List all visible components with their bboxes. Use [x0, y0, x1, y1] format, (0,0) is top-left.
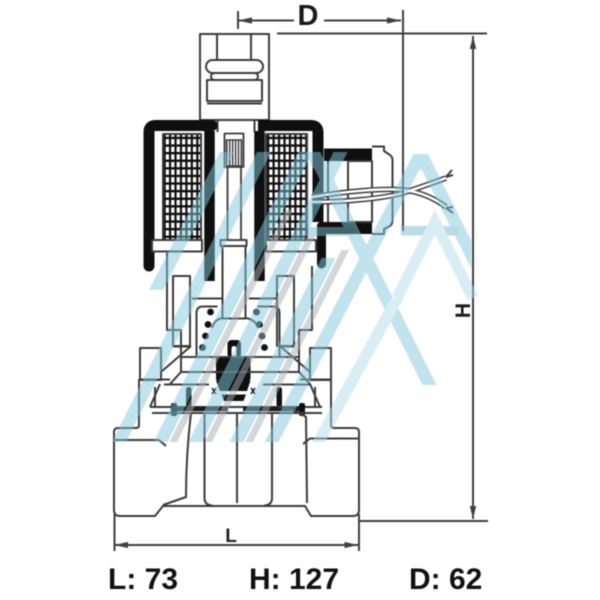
svg-text:L: 73: L: 73	[108, 563, 178, 596]
svg-text:L: L	[225, 526, 237, 547]
svg-text:D: D	[298, 0, 319, 32]
svg-text:H: H	[452, 303, 475, 318]
svg-text:D: 62: D: 62	[409, 563, 482, 596]
svg-text:H: 127: H: 127	[249, 563, 339, 596]
